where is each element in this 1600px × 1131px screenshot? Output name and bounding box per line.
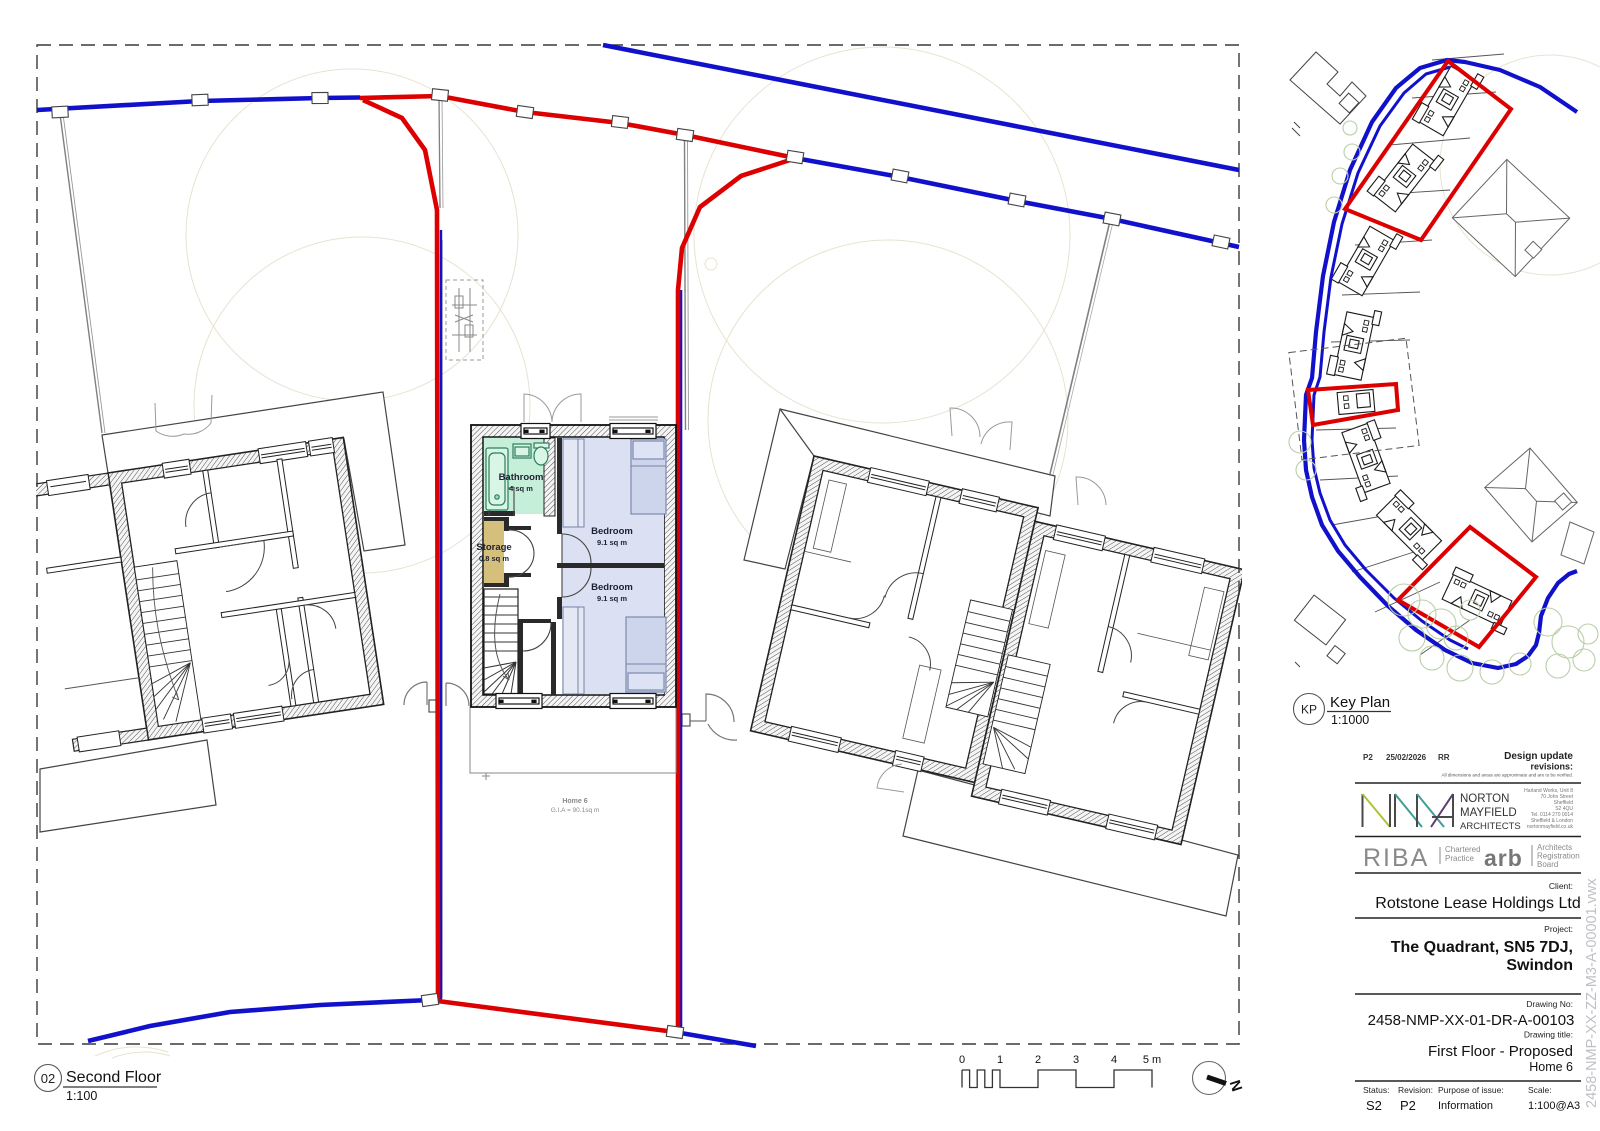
- svg-text:3: 3: [1073, 1054, 1079, 1066]
- svg-text:Purpose of issue:: Purpose of issue:: [1438, 1085, 1504, 1095]
- svg-text:revisions:: revisions:: [1530, 762, 1573, 772]
- svg-text:Chartered: Chartered: [1445, 845, 1481, 854]
- svg-text:Bedroom: Bedroom: [591, 582, 633, 593]
- svg-text:Practice: Practice: [1445, 854, 1474, 863]
- svg-text:Scale:: Scale:: [1528, 1085, 1552, 1095]
- svg-text:Swindon: Swindon: [1506, 957, 1573, 974]
- svg-text:4 sq m: 4 sq m: [509, 484, 533, 493]
- svg-text:2458-NMP-XX-01-DR-A-00103: 2458-NMP-XX-01-DR-A-00103: [1368, 1012, 1575, 1029]
- svg-text:1:1000: 1:1000: [1331, 713, 1369, 727]
- svg-text:The Quadrant, SN5 7DJ,: The Quadrant, SN5 7DJ,: [1391, 939, 1573, 956]
- svg-text:Bathroom: Bathroom: [499, 472, 544, 483]
- svg-text:2458-NMP-XX-ZZ-M3-A-00001.vwx: 2458-NMP-XX-ZZ-M3-A-00001.vwx: [1584, 878, 1600, 1108]
- svg-text:G.I.A = 90.1sq m: G.I.A = 90.1sq m: [551, 807, 600, 814]
- svg-text:1:100: 1:100: [66, 1089, 97, 1103]
- svg-text:P2: P2: [1400, 1098, 1416, 1113]
- svg-text:Bedroom: Bedroom: [591, 526, 633, 537]
- svg-text:Rotstone Lease Holdings Ltd: Rotstone Lease Holdings Ltd: [1375, 895, 1580, 912]
- svg-text:All dimensions and areas are a: All dimensions and areas are approximate…: [1441, 773, 1573, 778]
- svg-text:Drawing title:: Drawing title:: [1524, 1030, 1573, 1040]
- svg-text:Home 6: Home 6: [562, 798, 587, 805]
- svg-text:1: 1: [997, 1054, 1003, 1066]
- svg-text:RR: RR: [1438, 753, 1450, 762]
- svg-text:0.8 sq m: 0.8 sq m: [479, 554, 509, 563]
- svg-text:Second Floor: Second Floor: [66, 1069, 162, 1086]
- svg-text:Client:: Client:: [1549, 881, 1573, 891]
- svg-text:Design update: Design update: [1504, 751, 1573, 762]
- svg-text:4: 4: [1111, 1054, 1117, 1066]
- svg-text:5 m: 5 m: [1143, 1054, 1161, 1066]
- svg-text:NORTON: NORTON: [1460, 793, 1509, 805]
- svg-text:Board: Board: [1537, 860, 1558, 869]
- svg-text:2: 2: [1035, 1054, 1041, 1066]
- svg-text:Home 6: Home 6: [1529, 1060, 1573, 1074]
- svg-text:0: 0: [959, 1054, 965, 1066]
- svg-text:First Floor - Proposed: First Floor - Proposed: [1428, 1043, 1573, 1060]
- svg-text:KP: KP: [1301, 703, 1317, 717]
- svg-text:RIBA: RIBA: [1363, 844, 1429, 872]
- svg-text:Project:: Project:: [1544, 924, 1573, 934]
- svg-text:25/02/2026: 25/02/2026: [1386, 753, 1427, 762]
- svg-text:Storage: Storage: [476, 542, 511, 553]
- svg-text:Revision:: Revision:: [1398, 1085, 1433, 1095]
- svg-text:Key Plan: Key Plan: [1330, 694, 1390, 711]
- svg-text:Information: Information: [1438, 1100, 1493, 1112]
- svg-text:P2: P2: [1363, 753, 1373, 762]
- svg-text:1:100@A3: 1:100@A3: [1528, 1100, 1580, 1112]
- svg-text:Status:: Status:: [1363, 1085, 1389, 1095]
- svg-text:S2: S2: [1366, 1098, 1382, 1113]
- svg-text:9.1 sq m: 9.1 sq m: [597, 538, 627, 547]
- svg-text:arb: arb: [1484, 845, 1523, 871]
- svg-text:9.1 sq m: 9.1 sq m: [597, 594, 627, 603]
- svg-text:ARCHITECTS: ARCHITECTS: [1460, 821, 1521, 832]
- svg-text:02: 02: [41, 1071, 55, 1086]
- svg-text:nortonmayfield.co.uk: nortonmayfield.co.uk: [1527, 824, 1574, 830]
- svg-text:MAYFIELD: MAYFIELD: [1460, 807, 1517, 819]
- svg-text:Drawing No:: Drawing No:: [1526, 999, 1573, 1009]
